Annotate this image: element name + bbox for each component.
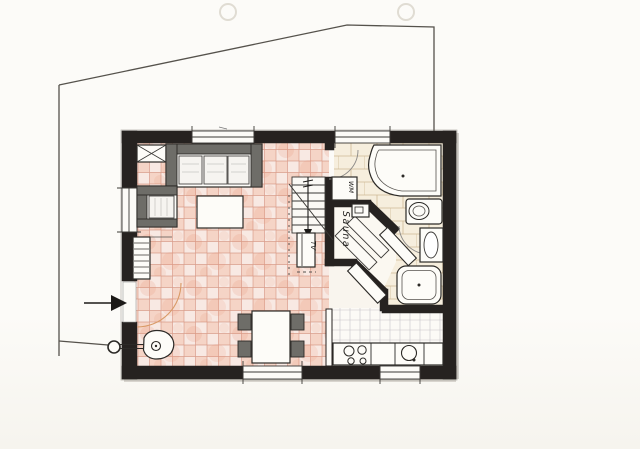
tv-cabinet: TV (297, 233, 317, 272)
boundary-top (59, 25, 434, 131)
washbasin (420, 228, 443, 262)
washing-machine-label: WM (347, 181, 355, 193)
boundary-service-line (59, 341, 108, 345)
wall-left-3 (122, 322, 137, 379)
dining-kitchen-partition (326, 309, 332, 366)
wall-bath-partition-top (325, 143, 334, 150)
wall-shower-bottom (382, 305, 443, 313)
floor-plan-scan: TV Sauna WM (0, 0, 640, 449)
sauna-heater (352, 204, 369, 217)
punch-hole-marks (220, 4, 414, 20)
dining-chair (238, 314, 251, 330)
dining-chair (291, 341, 304, 357)
washing-machine: WM (332, 177, 357, 200)
sauna-label: Sauna (340, 211, 351, 248)
bottom-wall-shading (124, 379, 456, 382)
wall-right (443, 131, 456, 379)
wall-bottom-1 (122, 366, 243, 379)
floor-plan-svg: TV Sauna WM (0, 0, 640, 449)
dining-chair (291, 314, 304, 330)
kitchen-counter (333, 343, 443, 365)
dining-table (252, 311, 290, 363)
shower-tray (397, 266, 441, 304)
stove-flue-valve (108, 341, 120, 353)
wall-sauna-left (325, 202, 334, 266)
corner-cabinet (137, 145, 166, 162)
wall-bottom-2 (302, 366, 380, 379)
right-wall-shading (456, 133, 459, 379)
bathtub (369, 145, 441, 196)
armchair (137, 186, 177, 227)
wall-left-1 (122, 131, 137, 188)
toilet (406, 199, 442, 224)
sofa (166, 144, 262, 187)
dining-chair (238, 341, 251, 357)
wall-top-2 (254, 131, 335, 143)
tv-label: TV (309, 241, 317, 251)
punch-hole-right (398, 4, 414, 20)
punch-hole-left (220, 4, 236, 20)
coffee-table (197, 196, 243, 228)
